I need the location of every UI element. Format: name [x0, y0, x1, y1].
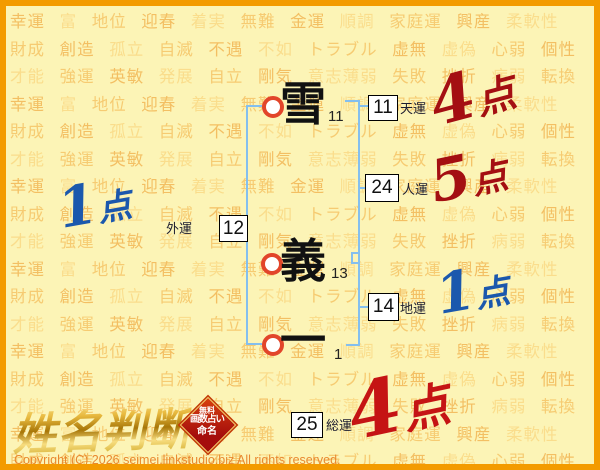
seal-line-2: 画数占い	[179, 415, 235, 426]
seal-line-3: 命名	[179, 426, 235, 438]
outer-label: 外運	[166, 222, 192, 235]
earth-score: 1点	[432, 258, 512, 319]
heaven-number-box: 11	[368, 95, 398, 121]
outer-score: 1点	[54, 172, 134, 233]
person-number-box: 24	[365, 174, 399, 202]
surname-stroke-count: 11	[328, 109, 344, 124]
junction-stub-bottom	[351, 262, 359, 264]
right-bracket-vertical	[358, 102, 360, 346]
outer-bracket-top-stub	[246, 105, 262, 107]
heaven-label: 天運	[400, 102, 426, 115]
earth-box-connector	[360, 306, 368, 308]
person-label: 人運	[402, 183, 428, 196]
seimei-result-panel: 幸運 富 地位 迎春 着実 無難 金運 順調 家庭運 興産 柔軟性 財成 創造 …	[0, 0, 600, 470]
earth-label: 地運	[400, 302, 426, 315]
earth-number-box: 14	[368, 293, 399, 321]
surname-char: 雪	[280, 82, 326, 128]
outer-number-box: 12	[219, 215, 248, 242]
total-label: 総運	[326, 419, 352, 432]
earth-bracket-stub	[346, 344, 360, 346]
given-char-1: 義	[280, 239, 326, 285]
given-char-2-stroke-count: 1	[334, 347, 342, 362]
given-char-2: 一	[280, 318, 326, 364]
junction-stub-top	[351, 252, 359, 254]
outer-bracket-bottom-stub	[246, 343, 262, 345]
total-number-box: 25	[291, 412, 323, 438]
given-char-1-stroke-count: 13	[331, 266, 348, 281]
free-stroke-fortune-seal: 無料 画数占い 命名	[179, 396, 235, 452]
heaven-bracket-stub	[345, 100, 360, 102]
copyright-text: Copyright (C) 2026 seimei.linkstudio.biz…	[14, 453, 341, 467]
